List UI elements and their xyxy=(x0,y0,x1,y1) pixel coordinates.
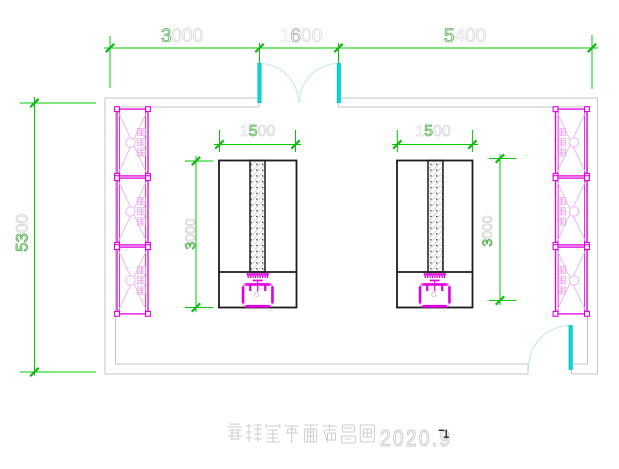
svg-text:0: 0 xyxy=(182,226,198,234)
svg-text:5: 5 xyxy=(249,123,258,140)
svg-text:0: 0 xyxy=(465,26,476,47)
svg-text:0: 0 xyxy=(433,123,442,140)
svg-text:0: 0 xyxy=(266,123,275,140)
svg-text:3: 3 xyxy=(479,239,495,247)
svg-text:6: 6 xyxy=(290,26,301,47)
svg-text:0: 0 xyxy=(476,26,487,47)
svg-text:0: 0 xyxy=(479,231,495,239)
svg-text:1: 1 xyxy=(415,123,424,140)
svg-text:4: 4 xyxy=(454,26,465,47)
svg-text:5: 5 xyxy=(444,26,455,47)
svg-text:1: 1 xyxy=(280,26,291,47)
svg-text:0: 0 xyxy=(193,26,204,47)
svg-text:0: 0 xyxy=(182,218,198,226)
svg-text:0: 0 xyxy=(182,234,198,242)
svg-text:0: 0 xyxy=(182,26,193,47)
svg-text:0: 0 xyxy=(13,224,32,233)
svg-text:3: 3 xyxy=(161,26,172,47)
svg-text:0: 0 xyxy=(13,214,32,223)
svg-text:0: 0 xyxy=(442,123,451,140)
svg-text:3: 3 xyxy=(13,233,32,242)
svg-text:0: 0 xyxy=(258,123,267,140)
svg-text:0: 0 xyxy=(479,223,495,231)
svg-text:0: 0 xyxy=(171,26,182,47)
svg-text:5: 5 xyxy=(424,123,433,140)
svg-text:0: 0 xyxy=(301,26,312,47)
svg-text:3: 3 xyxy=(182,242,198,250)
svg-text:5: 5 xyxy=(13,242,32,251)
svg-text:1: 1 xyxy=(240,123,249,140)
svg-text:0: 0 xyxy=(312,26,323,47)
svg-text:0: 0 xyxy=(479,215,495,223)
